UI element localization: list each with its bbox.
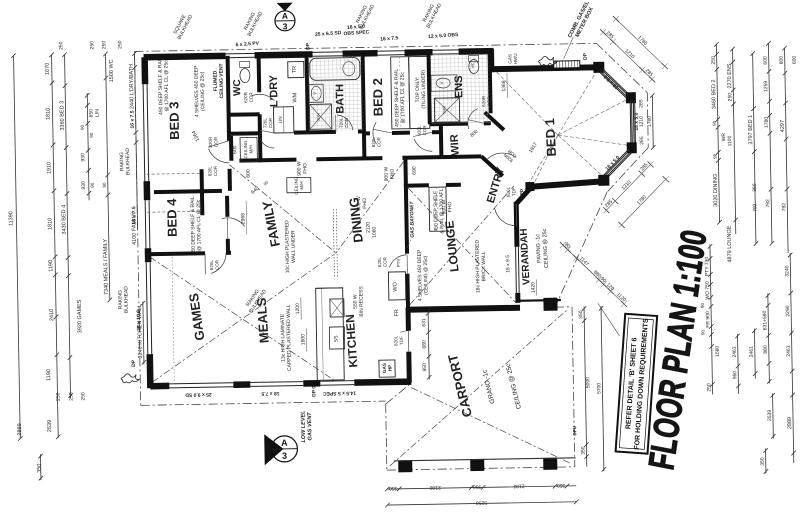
svg-text:14.5 x 5 SPEC: 14.5 x 5 SPEC	[323, 390, 357, 397]
svg-text:350: 350	[473, 483, 482, 489]
svg-text:1100: 1100	[727, 135, 733, 146]
svg-text:631: 631	[421, 318, 427, 327]
svg-text:@ 1700 AFL CL @ 25c: @ 1700 AFL CL @ 25c	[196, 199, 203, 251]
svg-text:TDF: TDF	[399, 336, 404, 345]
svg-text:930: 930	[80, 153, 86, 162]
svg-text:TR: TR	[292, 66, 298, 73]
svg-text:792: 792	[781, 203, 787, 212]
svg-text:250: 250	[80, 392, 86, 401]
svg-text:792: 792	[765, 199, 771, 208]
svg-text:WO: WO	[393, 281, 399, 291]
svg-text:BATH: BATH	[334, 84, 347, 114]
svg-text:18 x 7.5: 18 x 7.5	[261, 390, 279, 396]
svg-text:3360 BED 3: 3360 BED 3	[59, 101, 66, 131]
svg-text:2461: 2461	[786, 345, 792, 356]
svg-text:90: 90	[712, 153, 717, 159]
svg-text:COR: COR	[422, 125, 427, 136]
svg-text:WC: WC	[471, 62, 475, 68]
svg-text:2968: 2968	[240, 213, 246, 224]
svg-text:1210: 1210	[639, 116, 645, 127]
svg-text:PTY: PTY	[396, 258, 401, 267]
svg-text:FHO: FHO	[302, 163, 308, 174]
svg-text:792: 792	[752, 203, 758, 212]
svg-text:GAS: GAS	[382, 363, 387, 373]
svg-text:600: 600	[779, 56, 785, 65]
svg-text:90: 90	[102, 182, 107, 188]
svg-text:2461: 2461	[749, 346, 755, 357]
svg-text:TDF: TDF	[511, 187, 516, 196]
svg-text:LOW LEVEL: LOW LEVEL	[300, 410, 307, 443]
svg-text:(TILING UNDER): (TILING UNDER)	[421, 70, 428, 109]
svg-text:A: A	[282, 11, 288, 21]
svg-text:631+590: 631+590	[762, 310, 768, 330]
svg-text:2461: 2461	[732, 346, 738, 357]
svg-text:COR: COR	[344, 117, 349, 128]
svg-text:1420: 1420	[531, 282, 537, 293]
svg-text:BED 2: BED 2	[370, 78, 386, 117]
svg-text:90: 90	[89, 132, 94, 138]
svg-text:M/H: M/H	[299, 181, 304, 189]
svg-text:5000: 5000	[585, 377, 591, 388]
svg-text:FHO: FHO	[390, 169, 396, 180]
svg-text:690: 690	[412, 166, 418, 175]
svg-text:CEILING VENT: CEILING VENT	[218, 63, 225, 98]
svg-text:250: 250	[55, 392, 61, 401]
svg-text:1780: 1780	[647, 116, 653, 127]
svg-text:HWU: HWU	[513, 53, 518, 64]
svg-text:250: 250	[58, 41, 64, 50]
svg-text:CEILING: CEILING	[243, 140, 248, 159]
svg-text:1070: 1070	[45, 63, 51, 75]
svg-text:350: 350	[578, 310, 584, 319]
svg-text:2100: 2100	[513, 483, 524, 489]
svg-text:COR: COR	[249, 92, 254, 103]
svg-text:2539: 2539	[767, 410, 773, 421]
svg-text:250: 250	[706, 383, 712, 392]
svg-text:FR 900: FR 900	[705, 311, 711, 328]
svg-text:3240 KITCHEN WALL: 3240 KITCHEN WALL	[137, 304, 144, 358]
svg-text:250: 250	[89, 41, 95, 50]
svg-text:DP: DP	[305, 42, 311, 50]
svg-text:880: 880	[422, 340, 428, 349]
svg-text:GAS BAYONET: GAS BAYONET	[409, 200, 416, 237]
svg-text:COR: COR	[213, 165, 218, 176]
svg-text:2440 L'DRY/BATH: 2440 L'DRY/BATH	[129, 64, 136, 109]
svg-text:3: 3	[283, 21, 288, 31]
svg-text:2100: 2100	[429, 484, 440, 490]
svg-text:COR: COR	[214, 259, 219, 270]
svg-text:1800: 1800	[300, 334, 306, 345]
svg-text:BULKHEAD: BULKHEAD	[123, 286, 129, 313]
svg-text:600: 600	[763, 56, 769, 65]
svg-text:350: 350	[760, 457, 766, 466]
svg-text:(CEILING @ 25c): (CEILING @ 25c)	[200, 71, 207, 111]
svg-text:2539: 2539	[47, 420, 53, 432]
svg-text:820L: 820L	[506, 186, 511, 197]
svg-text:600: 600	[232, 145, 238, 154]
svg-text:3920 GAMES: 3920 GAMES	[77, 299, 84, 333]
svg-text:GAS VENT: GAS VENT	[307, 412, 314, 441]
svg-text:820L: 820L	[209, 260, 214, 271]
svg-text:3: 3	[282, 451, 287, 461]
svg-text:90: 90	[700, 330, 705, 336]
svg-text:820L: 820L	[371, 137, 376, 148]
svg-text:DPU: DPU	[572, 426, 577, 436]
svg-text:L'DRY: L'DRY	[268, 74, 281, 107]
svg-text:18 x 9.5: 18 x 9.5	[505, 255, 511, 273]
svg-text:620R: 620R	[481, 95, 486, 107]
svg-text:4879 LOUNGE: 4879 LOUNGE	[727, 225, 734, 262]
svg-text:1190: 1190	[46, 369, 52, 381]
svg-text:WC: WC	[232, 79, 243, 96]
svg-text:16 x 7.5: 16 x 7.5	[130, 110, 136, 128]
svg-text:FR: FR	[394, 309, 400, 316]
svg-text:1200: 1200	[295, 303, 301, 314]
svg-text:1500 WC: 1500 WC	[109, 59, 115, 82]
svg-text:FHO: FHO	[362, 198, 368, 209]
svg-text:250: 250	[117, 40, 123, 49]
svg-text:350: 350	[37, 464, 43, 473]
svg-text:LIN: LIN	[94, 109, 100, 117]
svg-text:COR: COR	[376, 136, 381, 147]
svg-text:285: 285	[639, 136, 645, 145]
svg-text:FHO: FHO	[447, 202, 453, 213]
svg-text:@ 1700 AFL CL @ 25c: @ 1700 AFL CL @ 25c	[163, 60, 170, 112]
svg-text:350: 350	[557, 482, 566, 488]
svg-text:WM: WM	[292, 92, 298, 102]
svg-text:1780: 1780	[764, 117, 770, 128]
svg-text:SS: SS	[333, 335, 339, 342]
svg-text:1368: 1368	[501, 80, 507, 91]
svg-text:BIN RECESS: BIN RECESS	[358, 286, 365, 317]
svg-text:90: 90	[80, 124, 85, 130]
svg-text:3797 BED 1: 3797 BED 1	[748, 115, 755, 145]
svg-text:CEILING: CEILING	[294, 176, 299, 195]
svg-text:ENS: ENS	[453, 75, 465, 98]
svg-text:90: 90	[90, 182, 95, 188]
svg-text:16 x 7.5: 16 x 7.5	[380, 35, 399, 42]
svg-text:3240: 3240	[784, 265, 790, 276]
svg-text:820L: 820L	[417, 125, 422, 136]
svg-text:DP: DP	[583, 52, 589, 60]
svg-text:BED 1: BED 1	[542, 118, 559, 157]
svg-text:BULKHEAD: BULKHEAD	[125, 148, 131, 175]
svg-text:2410: 2410	[49, 309, 55, 321]
svg-text:1810: 1810	[47, 218, 53, 230]
svg-text:3020 DINING: 3020 DINING	[713, 174, 720, 207]
svg-text:BRICK WALL: BRICK WALL	[481, 251, 488, 281]
svg-text:3430 BED 4: 3430 BED 4	[61, 205, 68, 235]
svg-text:V: V	[439, 81, 444, 84]
svg-text:250: 250	[101, 41, 107, 50]
svg-text:7340 MEALS / FAMILY: 7340 MEALS / FAMILY	[103, 239, 110, 296]
svg-text:COR: COR	[213, 136, 218, 147]
svg-text:1810: 1810	[45, 108, 51, 120]
svg-text:820L: 820L	[207, 166, 212, 177]
svg-text:820R: 820R	[208, 136, 213, 148]
svg-text:COR: COR	[382, 256, 387, 267]
svg-text:950: 950	[422, 363, 428, 372]
svg-text:930: 930	[81, 181, 87, 190]
svg-text:880: 880	[763, 345, 769, 354]
svg-text:WALL UNDER: WALL UNDER	[290, 230, 297, 263]
svg-text:600: 600	[246, 169, 252, 178]
svg-text:LIN: LIN	[278, 116, 283, 123]
svg-text:4100 FAMILY: 4100 FAMILY	[131, 212, 138, 245]
svg-text:3460 BED 2: 3460 BED 2	[711, 79, 718, 109]
svg-text:COR: COR	[487, 95, 492, 106]
svg-text:2889: 2889	[17, 423, 23, 435]
svg-text:DP 0: DP 0	[311, 386, 317, 397]
svg-text:360: 360	[752, 183, 758, 192]
svg-text:350: 350	[389, 485, 398, 491]
svg-text:1580: 1580	[715, 345, 721, 356]
svg-text:(CEILING @ 25c): (CEILING @ 25c)	[423, 255, 430, 295]
svg-text:M/H: M/H	[248, 145, 253, 153]
svg-text:COR: COR	[268, 117, 273, 128]
svg-text:2290: 2290	[785, 305, 791, 316]
svg-text:GAS: GAS	[507, 54, 512, 64]
svg-text:DP: DP	[131, 359, 137, 367]
svg-text:@ 1700 AFL CL @ 25c: @ 1700 AFL CL @ 25c	[400, 72, 407, 124]
svg-text:1910: 1910	[46, 162, 52, 174]
svg-text:90: 90	[712, 120, 717, 126]
svg-text:620R: 620R	[243, 91, 248, 103]
svg-text:820L: 820L	[393, 335, 398, 346]
svg-text:950: 950	[732, 371, 738, 380]
svg-text:350: 350	[580, 446, 586, 455]
svg-text:1190: 1190	[48, 260, 54, 272]
svg-text:620L: 620L	[377, 257, 382, 268]
svg-text:5700: 5700	[596, 383, 602, 394]
svg-text:2270 ENS: 2270 ENS	[727, 63, 733, 89]
svg-text:720L: 720L	[339, 117, 344, 128]
svg-text:1060: 1060	[372, 226, 378, 237]
svg-text:BED 4: BED 4	[164, 198, 180, 237]
svg-text:CAPPED PLASTERED WALL: CAPPED PLASTERED WALL	[286, 304, 293, 371]
svg-text:1259: 1259	[763, 81, 769, 92]
svg-text:25 x 9.0 SD: 25 x 9.0 SD	[185, 391, 212, 397]
svg-text:WIR: WIR	[448, 134, 461, 156]
svg-text:250: 250	[711, 56, 717, 65]
svg-text:250: 250	[68, 392, 74, 401]
svg-text:V: V	[312, 92, 317, 95]
svg-text:SHR: SHR	[441, 106, 446, 115]
svg-text:5250: 5250	[476, 499, 487, 505]
svg-text:4297: 4297	[780, 120, 786, 132]
svg-text:250: 250	[727, 93, 733, 102]
svg-text:720L: 720L	[262, 118, 267, 129]
svg-text:11390: 11390	[8, 211, 14, 226]
svg-text:HP: HP	[387, 365, 392, 371]
svg-text:2889: 2889	[787, 417, 793, 429]
svg-text:A: A	[281, 438, 288, 448]
svg-text:285: 285	[638, 99, 644, 108]
svg-text:600: 600	[792, 55, 798, 64]
